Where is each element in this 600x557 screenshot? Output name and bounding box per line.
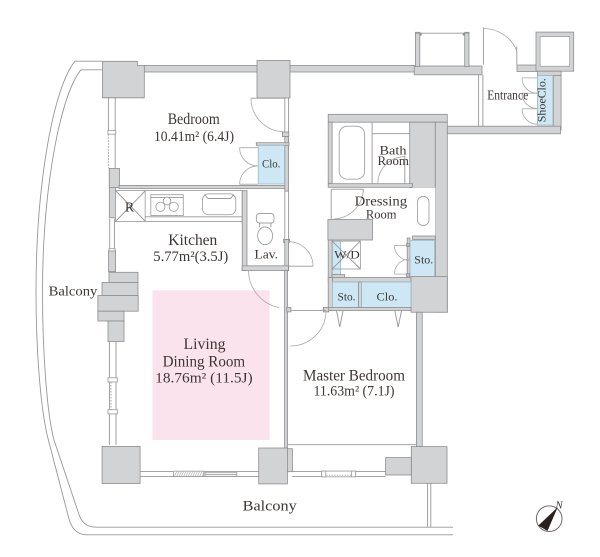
svg-text:W/D: W/D [334, 250, 360, 262]
svg-text:R: R [125, 201, 135, 216]
svg-text:18.76m² (11.5J): 18.76m² (11.5J) [155, 370, 253, 386]
svg-text:Sto.: Sto. [338, 292, 356, 304]
svg-text:Balcony: Balcony [243, 499, 298, 515]
svg-text:Balcony: Balcony [49, 284, 98, 299]
svg-text:Lav.: Lav. [255, 246, 279, 261]
svg-text:Master Bedroom: Master Bedroom [303, 368, 405, 385]
svg-text:N: N [554, 500, 563, 512]
svg-text:10.41m² (6.4J): 10.41m² (6.4J) [154, 129, 234, 145]
svg-text:Clo.: Clo. [377, 292, 398, 304]
svg-text:Bedroom: Bedroom [168, 111, 220, 128]
svg-text:Dining Room: Dining Room [163, 353, 246, 370]
svg-text:Living: Living [184, 336, 226, 353]
svg-text:Entrance: Entrance [487, 87, 528, 102]
svg-text:Kitchen: Kitchen [168, 232, 217, 249]
svg-text:Sto.: Sto. [414, 254, 433, 266]
svg-text:Room: Room [377, 153, 409, 168]
svg-text:ShoeClo.: ShoeClo. [537, 78, 549, 122]
svg-text:Room: Room [366, 207, 397, 222]
svg-text:Clo.: Clo. [262, 158, 281, 170]
svg-text:5.77m²(3.5J): 5.77m²(3.5J) [153, 249, 228, 265]
svg-text:11.63m² (7.1J): 11.63m² (7.1J) [314, 384, 395, 400]
